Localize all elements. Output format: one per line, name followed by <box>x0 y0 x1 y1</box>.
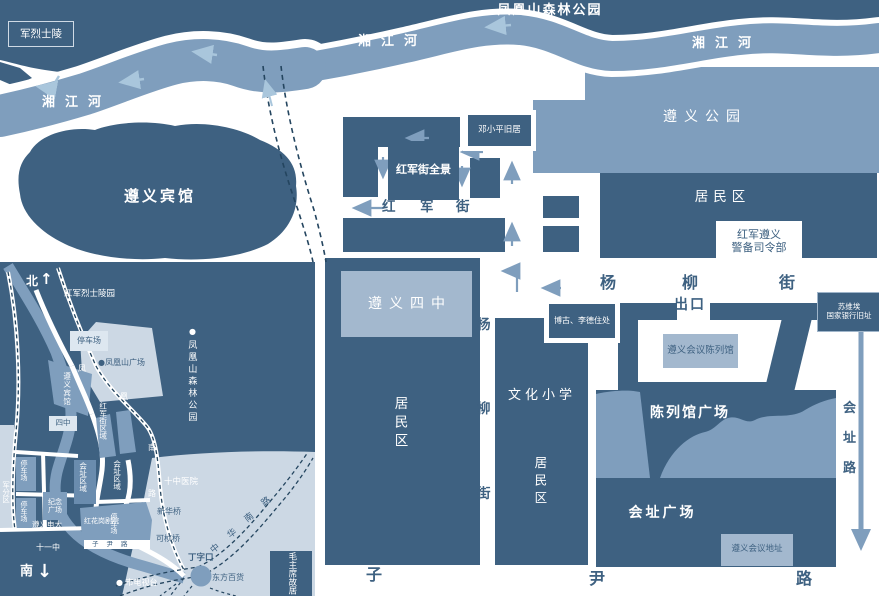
river-label-east: 湘江河 <box>692 37 761 52</box>
residential-v2-label: 居民区 <box>532 456 546 509</box>
museum-square-label: 陈列馆广场 <box>630 405 750 421</box>
huizhi-road-char-2: 址 <box>843 432 856 447</box>
zunyi-hotel-label: 遵义宾馆 <box>95 188 225 205</box>
inset-shiyizhong-label: 十一中 <box>36 543 60 552</box>
inset-parking-top-label: 停车场 <box>77 336 101 345</box>
inset-jinian-line2: 广场 <box>48 506 62 514</box>
north-arrow-icon: ↑ <box>40 271 53 288</box>
block-below-street <box>343 218 505 252</box>
dashed-road-1 <box>263 66 313 262</box>
yangliu-h-char-1: 杨 <box>600 274 616 292</box>
site-address-box: 遵义会议地址 <box>721 534 793 566</box>
hongjun-street-char-2: 军 <box>420 200 434 216</box>
exit-wall-left <box>618 303 677 320</box>
inset-kezhen-bridge-label: 可桢桥 <box>156 534 180 543</box>
inset-site-region-1-label: 会址区域 <box>78 462 87 492</box>
site-address-label: 遵义会议地址 <box>731 545 782 555</box>
huizhi-road-char-1: 会 <box>843 402 856 417</box>
martyrs-tomb-box: 军烈士陵 <box>8 21 74 47</box>
inset-dingzikou-label: 丁字口 <box>188 554 214 564</box>
yangliu-v-char-3: 街 <box>477 487 491 503</box>
inset-north-label: 北 <box>26 275 38 289</box>
garrison-hq-box: 红军遵义 警备司令部 <box>716 221 802 263</box>
inset-fenghuang-char-1: 凤 <box>78 364 86 373</box>
street-arrow-bent <box>505 271 517 292</box>
bogu-lide-box: 博古、李德住处 <box>549 304 615 338</box>
hongjun-street-char-1: 红 <box>382 200 396 216</box>
river-arrow-bent <box>40 76 59 89</box>
inset-hotel-label: 遵义宾馆 <box>62 372 71 406</box>
river-arrow <box>123 79 144 82</box>
exit-wall-right <box>710 303 818 320</box>
inset-south-label: 南 <box>20 565 33 580</box>
martyrs-tomb-label: 军烈士陵 <box>20 28 62 40</box>
wenhua-school-block <box>495 318 588 565</box>
huizhi-road-char-3: 路 <box>843 462 856 477</box>
inset-jinian-label: 纪念 广场 <box>43 493 67 519</box>
river-arrow <box>489 25 511 27</box>
inset-mao-residence-label: 毛主席故居 <box>286 552 296 595</box>
yangliu-h-char-3: 街 <box>779 274 795 292</box>
inset-fhs-square-label: ●凤凰山广场 <box>98 358 145 367</box>
inset-tv-station-label: ● 市电视台 <box>116 578 158 587</box>
inset-site-region-2-label: 会址区域 <box>112 460 121 490</box>
site-square-label: 会址广场 <box>610 505 715 521</box>
inset-martyrs-cemetery-label: 红军烈士陵园 <box>64 290 115 300</box>
inset-fhs-park-bullet: ● <box>189 327 196 336</box>
dashed-road-2 <box>281 66 326 262</box>
courtyard-wall-east <box>764 318 812 392</box>
inset-mao-residence-box: 毛主席故居 <box>270 551 312 596</box>
inset-ziyin-strip-label: 子尹路 <box>92 541 136 548</box>
deng-residence-label: 邓小平旧居 <box>478 126 521 136</box>
inset-sizhong-box: 四中 <box>49 416 77 431</box>
block-small-3 <box>543 226 579 252</box>
road-arrow <box>266 83 272 106</box>
museum-box: 遵义会议陈列馆 <box>663 334 738 368</box>
inset-parking-top-box: 停车场 <box>70 331 108 351</box>
inset-fenghuang-char-4: 路 <box>148 489 156 498</box>
residential-v1-label: 居民区 <box>391 396 407 452</box>
museum-label: 遵义会议陈列馆 <box>667 346 734 357</box>
zunyi-park-label: 遵义公园 <box>630 109 780 125</box>
inset-jinian-line1: 纪念 <box>48 498 62 506</box>
zunyi-conference-site-map: 凤凰山森林公园 军烈士陵 湘江河 湘江河 湘江河 遵义宾馆 遵义公园 居民区 红… <box>0 0 879 596</box>
inset-hospital-label: 十中医院 <box>164 478 198 488</box>
hjj-panorama-box: 红军街全景 <box>388 141 459 200</box>
garrison-hq-line2: 警备司令部 <box>732 242 787 255</box>
soviet-bank-box: 苏维埃 国家银行旧址 <box>817 292 879 332</box>
yangliu-v-char-2: 柳 <box>477 402 491 418</box>
wenhua-school-label: 文化小学 <box>496 389 588 404</box>
zunyi-park-region-b <box>585 67 879 101</box>
sizhong-box: 遵义四中 <box>341 271 472 337</box>
bogu-lide-label: 博古、李德住处 <box>554 316 610 325</box>
inset-hjj-region-label: 红军街区域 <box>98 402 107 440</box>
inset-fenghuang-char-2: 凰 <box>120 392 128 401</box>
inset-xinhua-bridge-label: 新华桥 <box>157 507 181 516</box>
hjj-panorama-label: 红军街全景 <box>396 164 451 177</box>
page-title-forest-park: 凤凰山森林公园 <box>440 4 660 19</box>
inset-sizhong-label: 四中 <box>56 419 71 428</box>
exit-label: 出口 <box>674 297 706 313</box>
yangliu-v-char-1: 杨 <box>477 318 491 334</box>
block-small-1 <box>470 158 500 198</box>
sizhong-label: 遵义四中 <box>361 296 452 312</box>
south-arrow-icon: ↓ <box>37 562 52 583</box>
inset-junfenqu-label: 军分区 <box>1 481 10 504</box>
river-label-center: 湘江河 <box>358 35 427 50</box>
hongjun-street-char-3: 街 <box>456 200 470 216</box>
inset-theater-label: 红花岗剧院 <box>84 517 119 525</box>
inset-fenghuang-char-3: 南 <box>148 443 156 452</box>
inset-fhs-park-label: 凤凰山森林公园 <box>186 340 196 424</box>
inset-dongfang-label: 东方百货 <box>212 573 244 582</box>
deng-residence-box: 邓小平旧居 <box>468 115 531 146</box>
residential-ne-label: 居民区 <box>670 190 775 206</box>
inset-dianda-label: 遵义电大 <box>32 521 62 530</box>
huizhi-road-arrowhead <box>851 529 871 551</box>
ziyin-road-char-2: 尹 <box>589 570 605 588</box>
yangliu-h-char-2: 柳 <box>682 274 698 292</box>
forest-park-peninsula <box>0 62 32 86</box>
block-left-column <box>343 147 378 197</box>
river-arrow <box>196 52 217 55</box>
block-small-2 <box>543 196 579 218</box>
river-label-west: 湘江河 <box>42 96 111 111</box>
inset-parking-1-label: 停车场 <box>20 460 28 481</box>
inset-parking-2-label: 停车场 <box>20 501 28 522</box>
ziyin-road-char-1: 子 <box>366 566 382 584</box>
soviet-bank-line2: 国家银行旧址 <box>827 312 872 321</box>
ziyin-road-char-3: 路 <box>796 570 812 588</box>
